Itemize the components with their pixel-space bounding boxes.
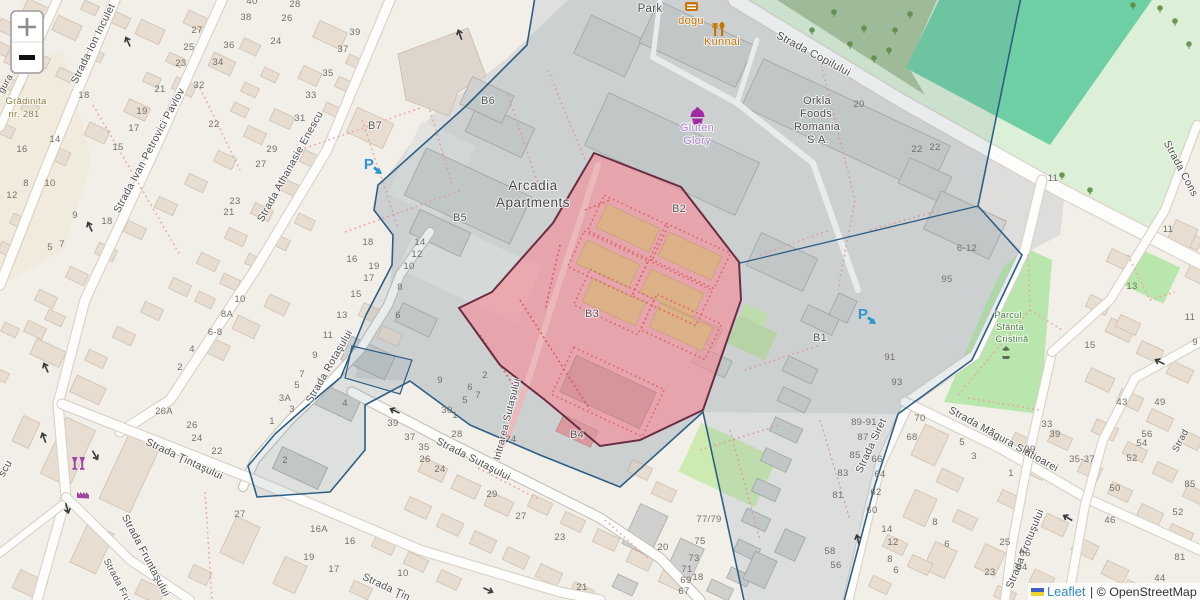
svg-text:Foods: Foods — [800, 108, 832, 120]
svg-text:46: 46 — [1104, 515, 1115, 526]
svg-text:8: 8 — [887, 554, 893, 565]
svg-text:64: 64 — [1016, 562, 1027, 573]
svg-text:Kunnai: Kunnai — [704, 36, 740, 48]
svg-text:18: 18 — [78, 90, 89, 101]
svg-text:Apartments: Apartments — [496, 195, 570, 210]
svg-text:20: 20 — [853, 99, 864, 110]
svg-text:4: 4 — [342, 398, 348, 409]
svg-text:14: 14 — [881, 524, 892, 535]
svg-text:24: 24 — [505, 434, 516, 445]
svg-text:28: 28 — [289, 0, 300, 10]
svg-text:Gluten: Gluten — [680, 122, 714, 134]
svg-text:73: 73 — [688, 553, 699, 564]
svg-text:17: 17 — [363, 273, 374, 284]
svg-text:56: 56 — [1141, 429, 1152, 440]
svg-text:15: 15 — [112, 142, 123, 153]
svg-text:4: 4 — [189, 344, 195, 355]
svg-text:21: 21 — [223, 207, 234, 218]
svg-text:39: 39 — [1049, 429, 1060, 440]
svg-text:7: 7 — [299, 369, 305, 380]
svg-text:71: 71 — [681, 564, 692, 575]
svg-text:23: 23 — [984, 567, 995, 578]
svg-text:24: 24 — [191, 433, 202, 444]
svg-text:40: 40 — [246, 0, 257, 7]
svg-text:7: 7 — [59, 239, 65, 250]
svg-text:15: 15 — [350, 289, 361, 300]
svg-text:3A: 3A — [279, 393, 292, 404]
svg-text:68: 68 — [906, 432, 917, 443]
svg-text:B1: B1 — [813, 332, 827, 344]
svg-text:81: 81 — [832, 490, 843, 501]
svg-text:13: 13 — [1126, 281, 1137, 292]
svg-text:44: 44 — [1154, 573, 1165, 584]
svg-text:35-37: 35-37 — [1069, 454, 1095, 465]
svg-text:Arcadia: Arcadia — [508, 178, 557, 193]
svg-text:| © OpenStreetMap: | © OpenStreetMap — [1090, 585, 1197, 599]
svg-text:17: 17 — [128, 123, 139, 134]
svg-text:31: 31 — [294, 113, 305, 124]
svg-text:B2: B2 — [672, 203, 686, 215]
svg-text:11: 11 — [1163, 224, 1173, 235]
svg-text:35: 35 — [322, 68, 333, 79]
svg-text:Orkla: Orkla — [803, 95, 831, 107]
svg-text:19: 19 — [136, 106, 147, 117]
svg-text:43: 43 — [1116, 397, 1127, 408]
svg-text:Sfânta: Sfânta — [996, 322, 1024, 332]
svg-text:8: 8 — [397, 282, 403, 293]
svg-text:93: 93 — [891, 377, 902, 388]
svg-text:39: 39 — [349, 27, 360, 38]
svg-text:27: 27 — [515, 511, 526, 522]
svg-text:19: 19 — [303, 552, 314, 563]
svg-text:23: 23 — [554, 532, 565, 543]
svg-text:62: 62 — [870, 487, 881, 498]
svg-text:12: 12 — [6, 190, 17, 201]
svg-text:34: 34 — [212, 57, 223, 68]
svg-text:Romania: Romania — [794, 121, 841, 133]
svg-text:Cristină: Cristină — [996, 334, 1029, 344]
svg-text:6: 6 — [395, 310, 401, 321]
svg-text:14: 14 — [49, 134, 60, 145]
svg-text:Glory: Glory — [683, 135, 711, 147]
svg-text:5: 5 — [462, 395, 468, 406]
svg-text:3: 3 — [289, 404, 295, 415]
svg-text:50: 50 — [1109, 483, 1120, 494]
svg-text:6: 6 — [467, 382, 473, 393]
svg-text:11: 11 — [1048, 173, 1058, 184]
svg-text:nr. 281: nr. 281 — [8, 109, 39, 120]
svg-text:35: 35 — [418, 442, 429, 453]
svg-text:B3: B3 — [585, 308, 599, 320]
svg-text:22: 22 — [929, 142, 940, 153]
svg-text:2: 2 — [282, 455, 288, 466]
svg-text:18: 18 — [362, 237, 373, 248]
svg-text:24: 24 — [434, 464, 445, 475]
svg-text:6-8: 6-8 — [208, 327, 223, 338]
svg-text:39: 39 — [387, 418, 398, 429]
svg-text:P: P — [858, 306, 868, 323]
svg-text:2: 2 — [482, 370, 488, 381]
svg-text:9: 9 — [1192, 337, 1198, 348]
svg-text:12: 12 — [887, 537, 898, 548]
svg-text:12: 12 — [411, 249, 422, 260]
svg-text:dogu: dogu — [678, 15, 704, 27]
svg-text:8: 8 — [932, 517, 938, 528]
svg-text:37: 37 — [337, 44, 348, 55]
svg-text:60: 60 — [866, 505, 877, 516]
svg-text:10: 10 — [403, 261, 414, 272]
svg-text:P: P — [364, 156, 374, 173]
svg-text:14: 14 — [414, 237, 425, 248]
svg-text:23: 23 — [175, 58, 186, 69]
svg-text:7: 7 — [475, 390, 481, 401]
svg-text:29: 29 — [486, 489, 497, 500]
svg-text:28: 28 — [451, 429, 462, 440]
svg-text:21: 21 — [154, 84, 165, 95]
svg-text:32: 32 — [193, 80, 204, 91]
svg-text:26A: 26A — [155, 406, 173, 417]
svg-text:27: 27 — [191, 25, 202, 36]
svg-text:85: 85 — [1184, 479, 1195, 490]
svg-text:10: 10 — [397, 568, 408, 579]
svg-text:58: 58 — [824, 546, 835, 557]
svg-text:83: 83 — [837, 468, 848, 479]
svg-text:30: 30 — [441, 405, 452, 416]
svg-text:S.A.: S.A. — [807, 134, 829, 146]
svg-text:8A: 8A — [221, 309, 234, 320]
svg-text:1: 1 — [269, 416, 275, 427]
svg-text:Parcul: Parcul — [994, 310, 1021, 320]
svg-text:27: 27 — [234, 509, 245, 520]
svg-text:B4: B4 — [570, 429, 584, 441]
svg-text:26: 26 — [281, 13, 292, 24]
svg-text:16: 16 — [344, 536, 355, 547]
svg-text:66: 66 — [1019, 548, 1030, 559]
svg-text:19: 19 — [368, 261, 379, 272]
svg-text:17: 17 — [328, 564, 339, 575]
svg-text:67: 67 — [678, 586, 689, 597]
svg-text:77/79: 77/79 — [696, 514, 721, 525]
svg-text:9: 9 — [437, 375, 443, 386]
svg-text:38: 38 — [240, 12, 251, 23]
svg-text:Grădinita: Grădinita — [5, 96, 47, 107]
svg-text:89-91: 89-91 — [851, 417, 877, 428]
svg-text:64: 64 — [874, 469, 885, 480]
svg-text:18: 18 — [101, 216, 112, 227]
svg-text:56: 56 — [830, 560, 841, 571]
svg-text:15: 15 — [1084, 340, 1095, 351]
svg-text:37: 37 — [404, 432, 415, 443]
svg-text:20: 20 — [657, 542, 668, 553]
svg-text:B6: B6 — [481, 95, 495, 107]
svg-text:5: 5 — [294, 380, 300, 391]
svg-text:85: 85 — [849, 450, 860, 461]
svg-text:70: 70 — [914, 413, 925, 424]
svg-text:1: 1 — [1008, 468, 1014, 479]
svg-text:Park: Park — [638, 3, 663, 15]
svg-text:10: 10 — [44, 178, 55, 189]
svg-text:9: 9 — [72, 210, 78, 221]
svg-text:1: 1 — [452, 410, 458, 421]
svg-text:B7: B7 — [368, 120, 382, 132]
svg-text:5: 5 — [47, 242, 53, 253]
svg-text:66: 66 — [871, 454, 882, 465]
svg-text:81: 81 — [1174, 552, 1185, 563]
svg-text:24: 24 — [270, 36, 281, 47]
svg-text:8: 8 — [23, 178, 29, 189]
svg-text:16: 16 — [16, 144, 27, 155]
svg-text:21: 21 — [576, 582, 587, 593]
svg-text:26: 26 — [419, 454, 430, 465]
svg-text:36: 36 — [223, 40, 234, 51]
svg-text:5: 5 — [959, 437, 965, 448]
svg-text:52: 52 — [1126, 453, 1137, 464]
svg-text:25: 25 — [999, 537, 1010, 548]
svg-text:25: 25 — [183, 42, 194, 53]
svg-text:6: 6 — [944, 539, 950, 550]
svg-text:3: 3 — [971, 451, 977, 462]
svg-text:16A: 16A — [310, 524, 328, 535]
svg-text:33: 33 — [305, 90, 316, 101]
svg-text:49: 49 — [1154, 397, 1165, 408]
svg-text:95: 95 — [941, 274, 952, 285]
svg-text:91: 91 — [884, 352, 895, 363]
svg-text:11: 11 — [1185, 312, 1195, 323]
svg-text:29: 29 — [266, 144, 277, 155]
svg-text:6: 6 — [893, 565, 899, 576]
svg-text:10: 10 — [234, 294, 245, 305]
svg-text:16: 16 — [346, 254, 357, 265]
svg-text:B5: B5 — [453, 212, 467, 224]
svg-text:11: 11 — [323, 330, 333, 341]
svg-text:2: 2 — [177, 362, 183, 373]
svg-text:22: 22 — [211, 446, 222, 457]
svg-text:9: 9 — [312, 350, 318, 361]
svg-text:6-12: 6-12 — [957, 243, 977, 254]
svg-text:18: 18 — [692, 572, 703, 583]
svg-text:23: 23 — [229, 196, 240, 207]
svg-text:87: 87 — [857, 432, 868, 443]
svg-text:22: 22 — [911, 144, 922, 155]
svg-text:75: 75 — [694, 536, 705, 547]
svg-text:52: 52 — [1172, 507, 1183, 518]
svg-text:69: 69 — [680, 575, 691, 586]
svg-text:13: 13 — [336, 310, 347, 321]
svg-text:26: 26 — [186, 420, 197, 431]
svg-text:Leaflet: Leaflet — [1047, 584, 1086, 599]
svg-text:27: 27 — [255, 159, 266, 170]
svg-text:22: 22 — [208, 119, 219, 130]
svg-text:29: 29 — [1024, 444, 1035, 455]
